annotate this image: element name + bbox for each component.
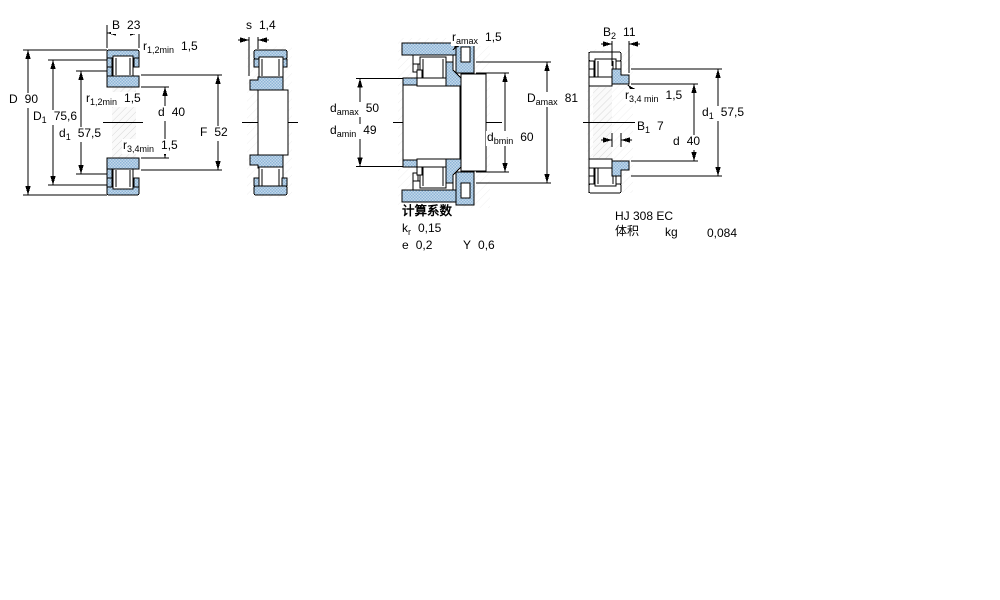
- inner-ring: [107, 76, 139, 87]
- housing: [402, 43, 456, 55]
- dim-label-r34-left: r3,4min1,5: [122, 139, 179, 154]
- dim-label-B1: B17: [636, 120, 665, 135]
- dim-label-B: B23: [111, 19, 141, 34]
- dim-label-d-amin: damin49: [329, 124, 378, 139]
- dim-label-r12-top: r1,2min1,5: [142, 40, 199, 55]
- dim-label-r12-mid: r1,2min1,5: [85, 92, 142, 107]
- factor-Y: Y0,6: [462, 239, 496, 254]
- abutment-sleeve: [461, 74, 486, 171]
- dim-label-r-amax: ramax1,5: [451, 31, 503, 46]
- inner-ring: [589, 77, 612, 86]
- dim-label-F: F52: [199, 126, 229, 141]
- dim-label-B2: B211: [602, 26, 637, 41]
- dim-label-d-amax: damax50: [329, 102, 380, 117]
- factor-kr: kr0,15: [401, 222, 442, 237]
- factor-e: e0,2: [401, 239, 433, 254]
- dim-label-D-amax: Damax81: [526, 92, 579, 107]
- dim-label-d40-left: d40: [157, 106, 186, 121]
- dim-label-d1-right: d157,5: [701, 106, 745, 121]
- bearing-drawing-canvas: [0, 0, 1000, 600]
- dim-label-d1-left: d157,5: [58, 127, 102, 142]
- part-designation: HJ 308 EC: [614, 210, 674, 223]
- dim-label-d40-right: d40: [672, 135, 701, 150]
- unit-label: kg: [664, 226, 679, 239]
- inner-ring-body: [258, 90, 288, 155]
- technical-drawing-page: B23 r1,2min1,5 D90 D175,6 d157,5 r1,2min…: [0, 0, 1000, 600]
- calculation-factors-title: 计算系数: [401, 205, 453, 218]
- roller: [420, 57, 446, 80]
- dim-label-D1: D175,6: [32, 110, 78, 125]
- dim-label-s: s1,4: [245, 19, 277, 34]
- shaft-shoulder: [403, 78, 417, 85]
- volume-label: 体积: [614, 225, 640, 238]
- dim-label-r34-right: r3,4 min1,5: [624, 89, 683, 104]
- mass-value: 0,084: [706, 227, 738, 240]
- drawing-abutment-dimensions: [356, 40, 551, 205]
- shaft: [403, 85, 460, 160]
- dim-label-D: D90: [8, 93, 39, 108]
- dim-label-d-bmin: dbmin60: [486, 131, 535, 146]
- inner-ring: [417, 78, 446, 86]
